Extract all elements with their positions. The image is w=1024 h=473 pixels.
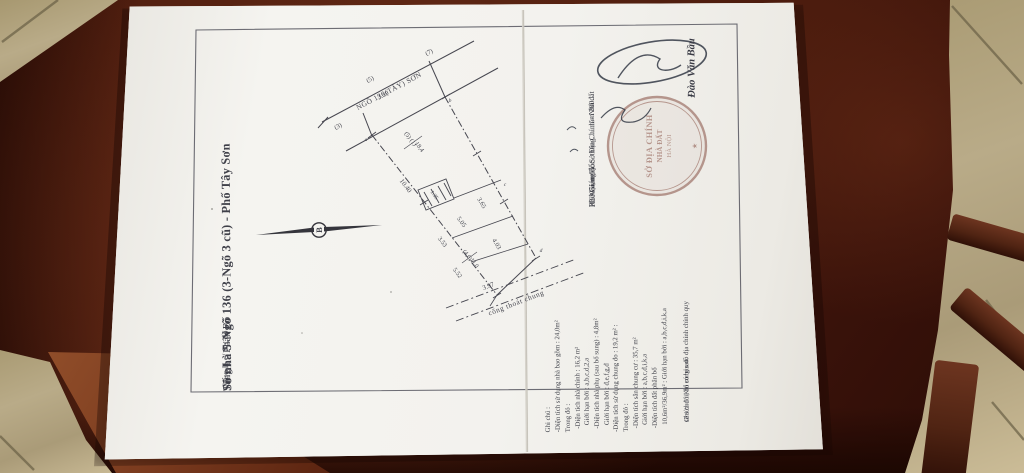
north-label: B: [314, 227, 324, 233]
footnote-line-2: sẽ sửa đổi, bổ sung sau.: [682, 358, 692, 422]
signature-scribble: [618, 55, 681, 78]
stamp-line-2: NHÀ ĐẤT: [654, 129, 664, 162]
notes-block: Ghi chú : -Diện tích sử dụng nhà bao gồm…: [524, 231, 671, 432]
note-line: Giới hạn bởi : a,b,c,đ,i,k,a: [641, 354, 651, 432]
signer-position-2: Phó Giám đốc: [586, 160, 598, 207]
note-line: -Diện tích sử dụng chung đo : 19,2 m² :: [612, 325, 622, 432]
road-end-tick-left: [318, 117, 328, 128]
note-line: Ghi chú :: [544, 407, 554, 432]
signer-name: Đào Văn Bầu: [686, 20, 698, 116]
dim-1040: 10.40: [398, 178, 413, 195]
note-line: -Diện tích nhà chính : 16,2 m²: [573, 347, 583, 432]
plot-right-boundary: [445, 97, 536, 258]
stamp-star: ★: [691, 143, 699, 149]
point-b: b: [449, 98, 452, 104]
house-number-3: (3): [333, 122, 343, 132]
date-handwriting-1: [567, 127, 576, 130]
note-line: Trong đó :: [622, 403, 632, 432]
survey-drawing: B NGÕ 136(TÂY) SƠN (3) (5) (7) 3.39 10.4…: [0, 0, 1024, 473]
note-line: Giới hạn bởi : a,b,c,d,2,a: [583, 358, 593, 432]
note-line: -Diện tích nhà phụ (sau bổ sung) : 4,8m²: [592, 318, 602, 432]
area-110: 11,0: [468, 257, 479, 269]
road-tick-a: [363, 113, 372, 136]
dim-403: 4.03: [490, 238, 502, 251]
photo-scene: B NGÕ 136(TÂY) SƠN (3) (5) (7) 3.39 10.4…: [0, 0, 1024, 473]
date-handwriting-2: [570, 149, 578, 152]
dim-135: 1.35: [429, 190, 440, 201]
note-line: -Diện tích đất phân bổ: [651, 367, 661, 431]
road-name-label: NGÕ 136(TÂY) SƠN: [354, 69, 423, 112]
dim-505: 5.05: [455, 215, 467, 228]
point-a: a: [365, 137, 368, 143]
plot-left-boundary: [372, 135, 497, 295]
dim-353: 3.53: [436, 236, 448, 249]
note-line: Giới hạn bởi : đ,e,f,g,đ: [602, 363, 612, 432]
note-line: -Diện tích sân chung cư : 35,7 m²: [631, 337, 641, 432]
stamp-line-3: HÀ NỘI: [665, 135, 673, 158]
plot-partition-1: [454, 180, 501, 198]
note-line: Trong đó :: [564, 404, 574, 433]
area-184: 18,4: [413, 141, 426, 155]
north-arrow: B: [256, 223, 382, 237]
point-c: c: [504, 182, 507, 188]
note-line: 10,6m²/36,9m² : Giới hạn bởi : a,b,c,đ,i…: [660, 308, 671, 431]
house-number-7: (7): [424, 48, 434, 58]
stamp-line-1: SỞ ĐỊA CHÍNH: [644, 114, 654, 178]
dim-365: 3.65: [475, 197, 487, 210]
page-subtitle: Tầng 1 - Phân Bổ: [222, 317, 234, 391]
dim-552: 5.52: [451, 267, 463, 280]
house-number-5: (5): [365, 75, 375, 85]
plot-extension-line: [429, 61, 445, 97]
note-line: -Diện tích sử dụng nhà bao gồm : 24,0m²: [553, 320, 563, 432]
